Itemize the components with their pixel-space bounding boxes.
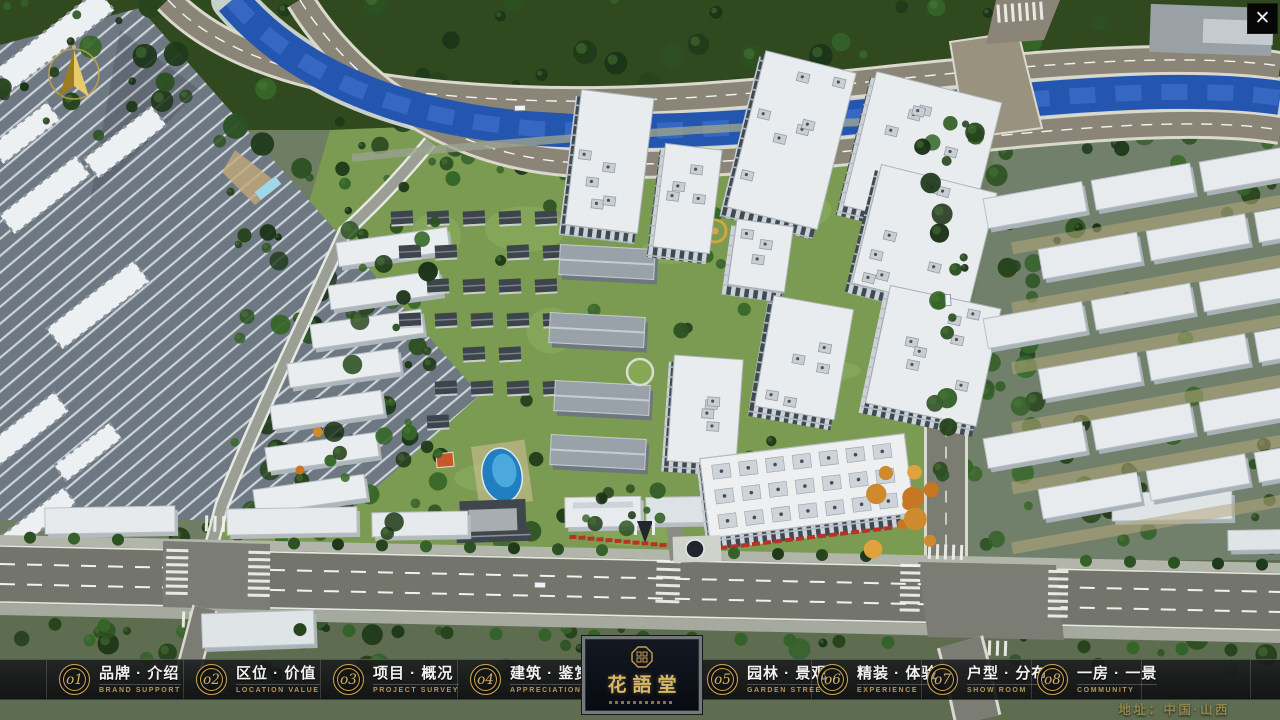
nav-item-project-survey[interactable]: o3 项目 · 概况 PROJECT SURVEY xyxy=(320,660,457,699)
nav-item-subtitle: BRAND SUPPORT xyxy=(99,684,181,694)
address-text: 地址：中国·山西 xyxy=(1118,699,1230,718)
logo-tagline-decor xyxy=(609,701,675,704)
project-logo-plaque[interactable]: 花語堂 xyxy=(582,636,702,714)
nav-item-garden-landscape[interactable]: o5 园林 · 景观 GARDEN STREET xyxy=(702,660,812,699)
nav-number-badge: o6 xyxy=(817,664,848,695)
seal-emblem-icon xyxy=(631,646,653,668)
nav-item-room-view[interactable]: o8 一房 · 一景 COMMUNITY xyxy=(1032,660,1142,699)
nav-item-subtitle: PROJECT SURVEY xyxy=(373,684,459,694)
nav-number-badge: o8 xyxy=(1037,664,1068,695)
nav-item-location-value[interactable]: o2 区位 · 价值 LOCATION VALUE xyxy=(183,660,320,699)
nav-item-title: 建筑 · 鉴赏 xyxy=(510,666,590,681)
nav-number-badge: o1 xyxy=(59,664,90,695)
nav-item-subtitle: COMMUNITY xyxy=(1077,684,1157,694)
nav-item-floorplan[interactable]: o7 户型 · 分布 SHOW ROOM xyxy=(922,660,1032,699)
nav-number-badge: o3 xyxy=(333,664,364,695)
nav-number-badge: o2 xyxy=(196,664,227,695)
nav-item-decor-experience[interactable]: o6 精装 · 体验 EXPERIENCE xyxy=(812,660,922,699)
nav-item-title: 品牌 · 介绍 xyxy=(99,666,181,681)
nav-item-subtitle: APPRECIATION xyxy=(510,684,590,694)
nav-item-title: 一房 · 一景 xyxy=(1077,666,1157,681)
nav-number-badge: o4 xyxy=(470,664,501,695)
nav-item-title: 项目 · 概况 xyxy=(373,666,459,681)
nav-item-architecture[interactable]: o4 建筑 · 鉴赏 APPRECIATION xyxy=(457,660,580,699)
bar-divider xyxy=(1250,660,1251,699)
nav-item-subtitle: LOCATION VALUE xyxy=(236,684,320,694)
project-name: 花語堂 xyxy=(601,670,682,697)
presentation-screen: ✕ o1 品牌 · 介绍 BRAND SUPPORT o2 区位 · 价值 LO… xyxy=(0,0,1280,720)
close-button[interactable]: ✕ xyxy=(1247,3,1278,34)
nav-number-badge: o5 xyxy=(707,664,738,695)
masterplan-3d-viewport[interactable] xyxy=(0,0,1280,720)
nav-item-title: 区位 · 价值 xyxy=(236,666,320,681)
nav-item-brand-intro[interactable]: o1 品牌 · 介绍 BRAND SUPPORT xyxy=(46,660,183,699)
nav-number-badge: o7 xyxy=(927,664,958,695)
close-icon: ✕ xyxy=(1255,9,1271,28)
